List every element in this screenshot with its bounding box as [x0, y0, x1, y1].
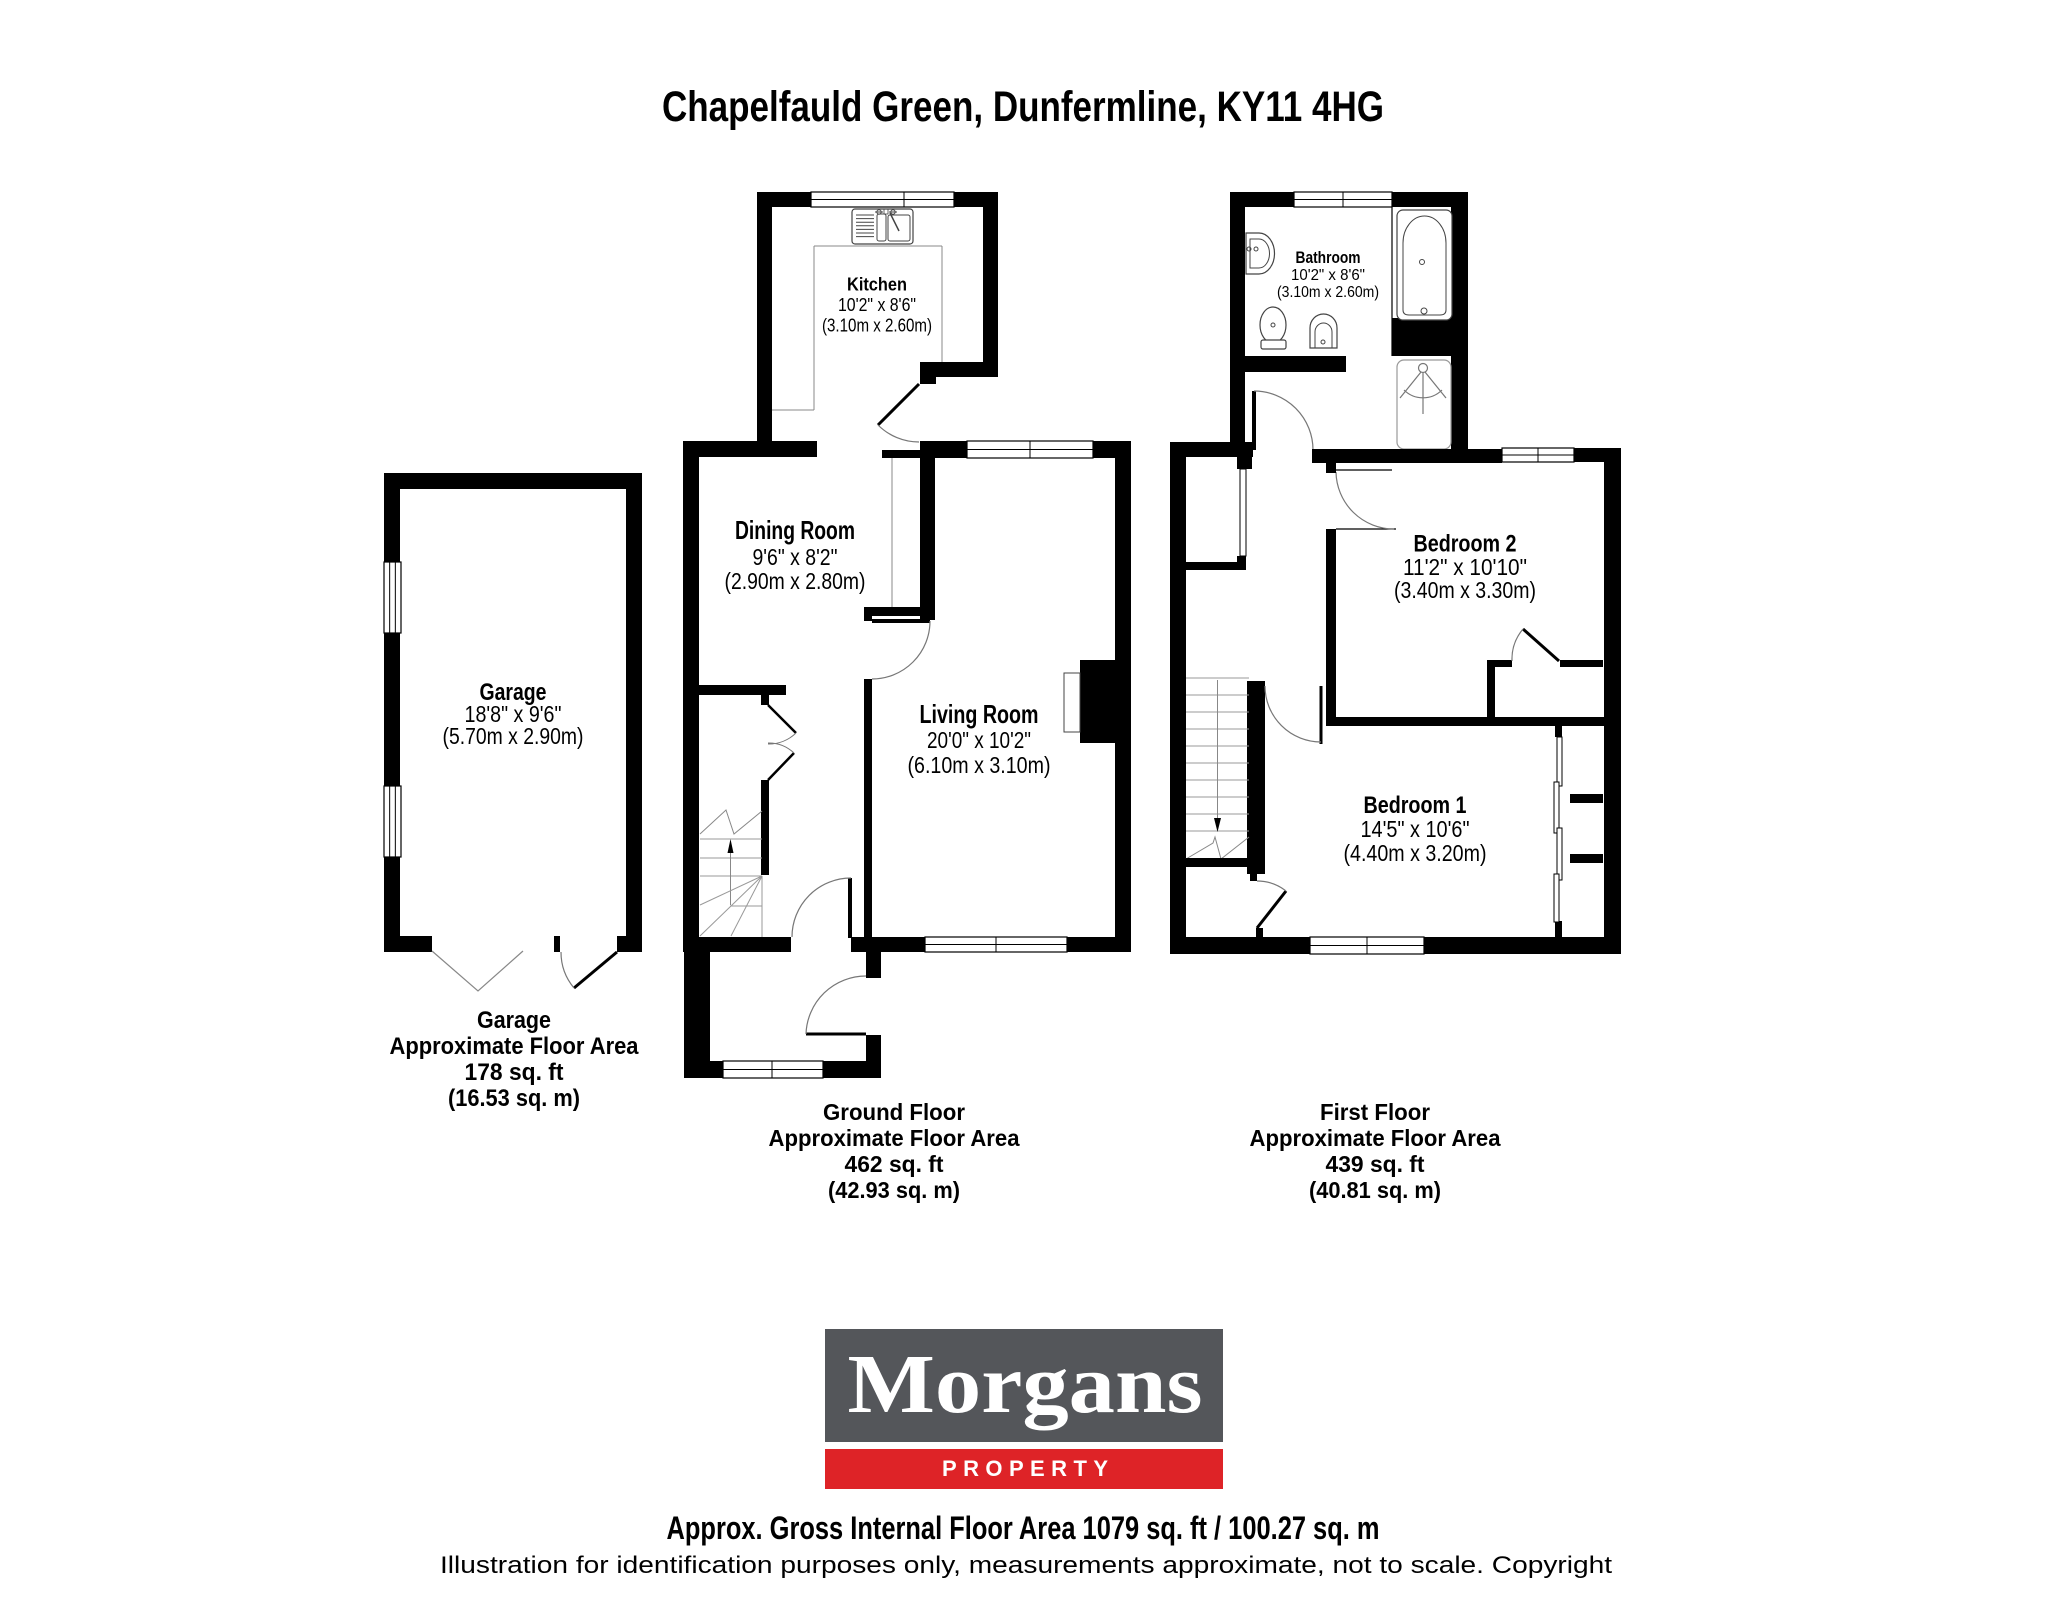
svg-text:439 sq. ft: 439 sq. ft — [1326, 1151, 1425, 1177]
svg-text:(3.10m x 2.60m): (3.10m x 2.60m) — [822, 316, 932, 336]
svg-text:Dining Room: Dining Room — [735, 515, 855, 545]
svg-text:Approx. Gross Internal Floor A: Approx. Gross Internal Floor Area 1079 s… — [667, 1510, 1380, 1546]
svg-text:Bathroom: Bathroom — [1296, 249, 1361, 267]
svg-text:Living Room: Living Room — [920, 699, 1039, 729]
svg-text:(40.81 sq. m): (40.81 sq. m) — [1309, 1177, 1441, 1203]
svg-text:Kitchen: Kitchen — [847, 275, 907, 295]
svg-text:(6.10m x 3.10m): (6.10m x 3.10m) — [908, 752, 1051, 778]
svg-text:462 sq. ft: 462 sq. ft — [845, 1151, 944, 1177]
svg-text:Approximate Floor Area: Approximate Floor Area — [390, 1033, 640, 1060]
svg-text:10'2" x 8'6": 10'2" x 8'6" — [838, 295, 916, 315]
svg-text:20'0" x 10'2": 20'0" x 10'2" — [927, 727, 1031, 753]
svg-text:Approximate Floor Area: Approximate Floor Area — [769, 1125, 1020, 1151]
svg-text:Approximate Floor Area: Approximate Floor Area — [1250, 1125, 1501, 1151]
svg-text:Morgans: Morgans — [848, 1338, 1203, 1431]
svg-text:(3.10m x 2.60m): (3.10m x 2.60m) — [1277, 284, 1379, 301]
svg-text:(3.40m x 3.30m): (3.40m x 3.30m) — [1394, 577, 1536, 603]
svg-text:Illustration for identificatio: Illustration for identification purposes… — [440, 1552, 1612, 1579]
svg-text:178 sq. ft: 178 sq. ft — [465, 1059, 564, 1086]
svg-text:14'5" x 10'6": 14'5" x 10'6" — [1361, 816, 1470, 842]
svg-text:First Floor: First Floor — [1320, 1099, 1430, 1125]
svg-text:10'2" x 8'6": 10'2" x 8'6" — [1291, 267, 1365, 284]
svg-text:(2.90m x 2.80m): (2.90m x 2.80m) — [725, 568, 866, 594]
svg-text:(4.40m x 3.20m): (4.40m x 3.20m) — [1344, 840, 1487, 866]
svg-text:(5.70m x 2.90m): (5.70m x 2.90m) — [443, 723, 584, 749]
svg-text:Ground Floor: Ground Floor — [823, 1099, 965, 1125]
svg-text:Bedroom 1: Bedroom 1 — [1364, 792, 1467, 819]
svg-text:Garage: Garage — [477, 1007, 551, 1034]
svg-text:Chapelfauld Green, Dunfermline: Chapelfauld Green, Dunfermline, KY11 4HG — [662, 83, 1384, 131]
svg-text:(42.93 sq. m): (42.93 sq. m) — [828, 1177, 960, 1203]
svg-text:9'6" x 8'2": 9'6" x 8'2" — [753, 544, 838, 570]
svg-text:(16.53 sq. m): (16.53 sq. m) — [448, 1085, 580, 1112]
